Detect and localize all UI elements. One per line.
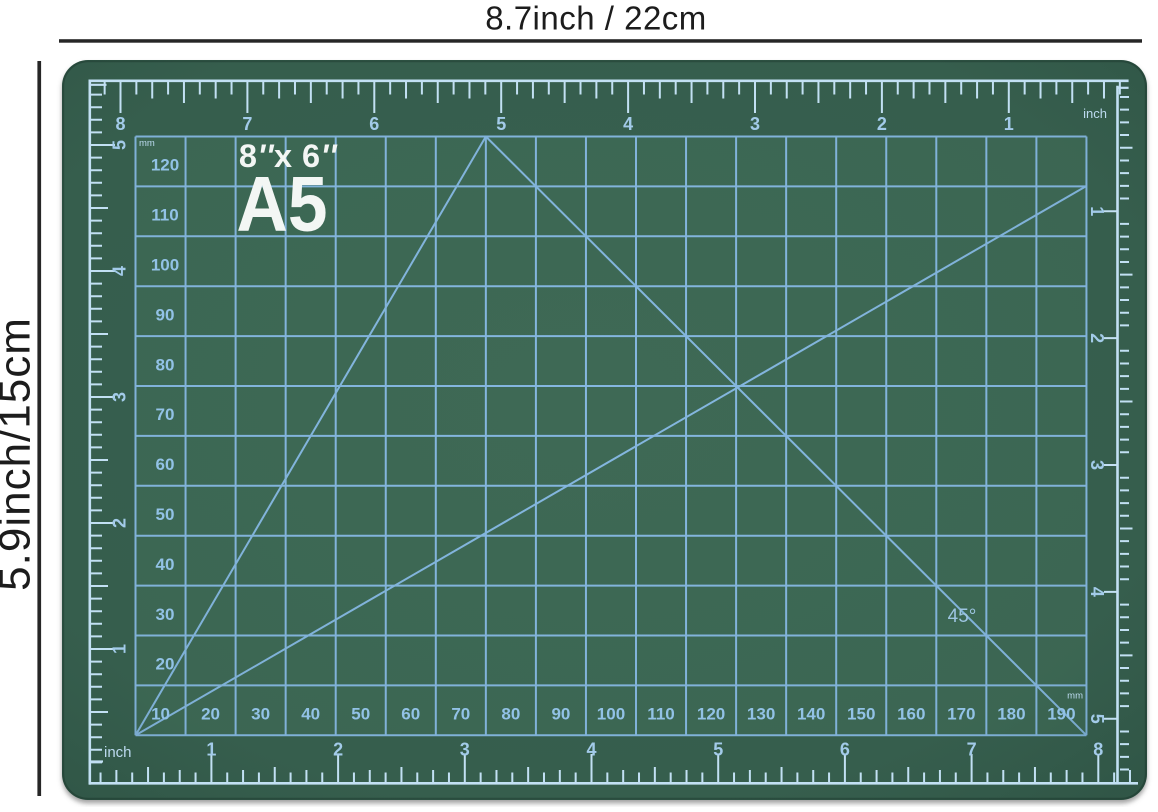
svg-text:6: 6 <box>369 114 379 134</box>
svg-text:70: 70 <box>451 705 470 724</box>
svg-text:7: 7 <box>242 114 252 134</box>
svg-text:1: 1 <box>1004 114 1014 134</box>
svg-text:90: 90 <box>156 305 175 324</box>
svg-text:2: 2 <box>110 518 130 528</box>
svg-text:5: 5 <box>110 140 130 150</box>
svg-text:110: 110 <box>151 206 178 225</box>
svg-text:70: 70 <box>156 405 175 424</box>
svg-text:190: 190 <box>1047 705 1075 724</box>
svg-text:4: 4 <box>110 266 130 276</box>
svg-text:A5: A5 <box>236 160 327 248</box>
svg-text:inch: inch <box>104 744 132 761</box>
svg-text:120: 120 <box>151 156 179 175</box>
svg-text:50: 50 <box>156 505 175 524</box>
svg-text:inch: inch <box>1083 106 1107 121</box>
svg-text:20: 20 <box>201 705 220 724</box>
svg-text:3: 3 <box>1087 460 1107 470</box>
svg-text:7: 7 <box>967 740 977 760</box>
svg-text:5: 5 <box>496 114 506 134</box>
svg-text:150: 150 <box>847 705 875 724</box>
svg-text:4: 4 <box>623 114 633 134</box>
svg-text:140: 140 <box>797 705 825 724</box>
svg-text:40: 40 <box>301 705 320 724</box>
svg-text:8: 8 <box>1093 740 1103 760</box>
svg-text:30: 30 <box>251 705 270 724</box>
svg-text:5: 5 <box>1087 714 1107 724</box>
svg-text:80: 80 <box>501 705 520 724</box>
svg-text:90: 90 <box>551 705 570 724</box>
svg-text:1: 1 <box>1087 206 1107 216</box>
svg-text:mm: mm <box>1067 691 1083 702</box>
svg-text:160: 160 <box>897 705 925 724</box>
svg-text:8: 8 <box>115 114 125 134</box>
svg-text:80: 80 <box>156 355 175 374</box>
svg-text:50: 50 <box>351 705 370 724</box>
svg-text:130: 130 <box>747 705 775 724</box>
svg-text:60: 60 <box>156 455 175 474</box>
svg-text:1: 1 <box>110 644 130 654</box>
svg-text:2: 2 <box>333 740 343 760</box>
svg-text:8.7inch / 22cm: 8.7inch / 22cm <box>485 0 707 37</box>
svg-text:2: 2 <box>877 114 887 134</box>
svg-text:30: 30 <box>156 605 175 624</box>
svg-text:10: 10 <box>151 705 170 724</box>
svg-text:mm: mm <box>139 138 155 149</box>
svg-text:6: 6 <box>840 740 850 760</box>
svg-text:2: 2 <box>1087 333 1107 343</box>
svg-text:40: 40 <box>156 555 175 574</box>
svg-text:4: 4 <box>1087 587 1107 597</box>
svg-text:100: 100 <box>597 705 625 724</box>
svg-text:100: 100 <box>151 255 179 274</box>
svg-text:3: 3 <box>110 392 130 402</box>
svg-text:180: 180 <box>997 705 1025 724</box>
svg-text:5: 5 <box>713 740 723 760</box>
svg-text:1: 1 <box>206 740 216 760</box>
svg-text:60: 60 <box>401 705 420 724</box>
svg-text:20: 20 <box>156 655 175 674</box>
svg-text:3: 3 <box>460 740 470 760</box>
svg-text:110: 110 <box>647 705 674 724</box>
svg-text:3: 3 <box>750 114 760 134</box>
svg-text:4: 4 <box>586 740 596 760</box>
svg-text:120: 120 <box>697 705 725 724</box>
svg-text:5.9inch/15cm: 5.9inch/15cm <box>0 317 40 591</box>
svg-text:170: 170 <box>947 705 975 724</box>
